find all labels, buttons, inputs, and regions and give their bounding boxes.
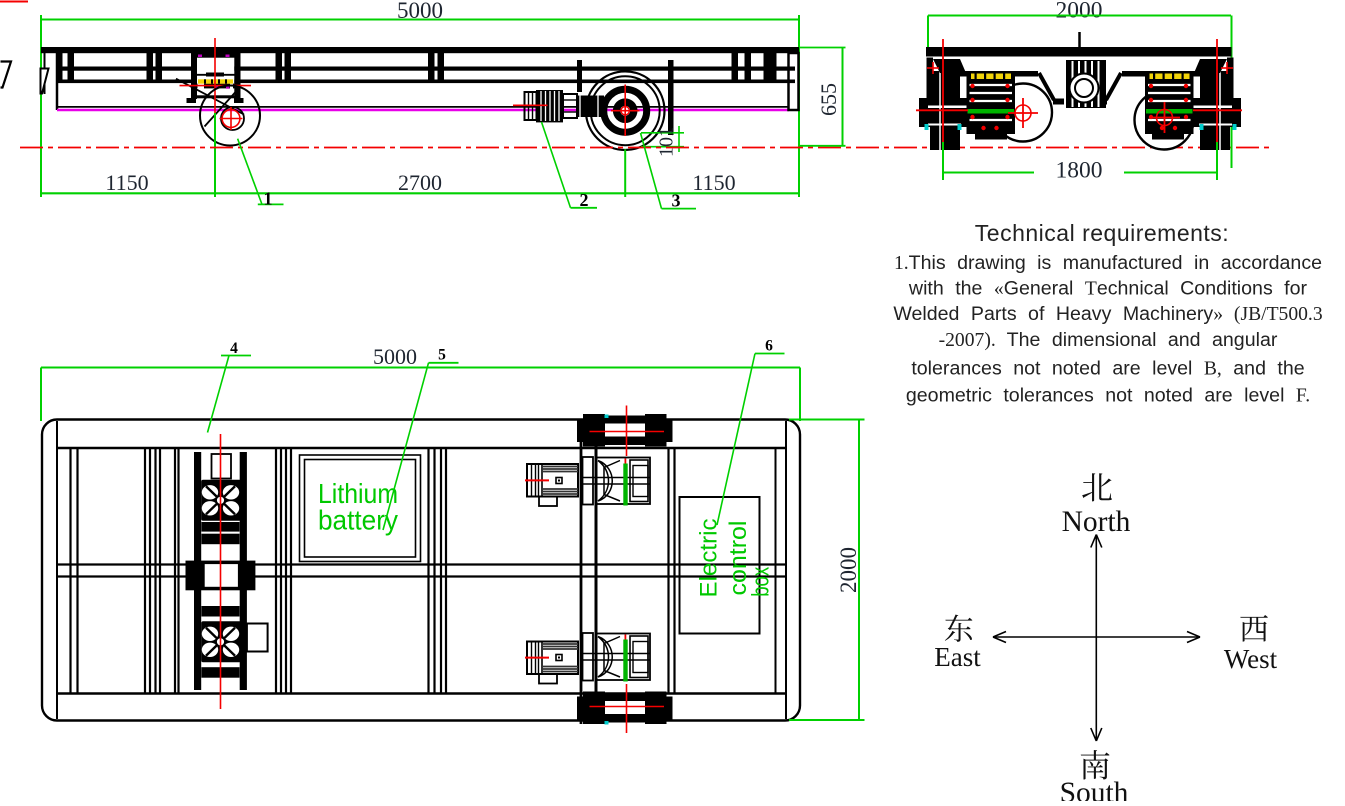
svg-text:5000: 5000	[373, 344, 417, 369]
svg-text:North: North	[1062, 506, 1131, 538]
svg-text:geometric tolerances not noted: geometric tolerances not noted are level…	[906, 385, 1310, 407]
svg-text:2700: 2700	[398, 170, 442, 195]
svg-text:Technical requirements:: Technical requirements:	[975, 220, 1229, 246]
svg-text:1150: 1150	[692, 170, 735, 195]
svg-text:box: box	[748, 567, 775, 597]
svg-text:Electric: Electric	[696, 519, 723, 598]
svg-text:1.This drawing is manufactured: 1.This drawing is manufactured in accord…	[894, 252, 1322, 274]
svg-text:3: 3	[672, 191, 681, 211]
svg-text:Welded Parts of Heavy Machiner: Welded Parts of Heavy Machinery» (JB/T50…	[893, 303, 1322, 325]
svg-text:2000: 2000	[1056, 0, 1103, 24]
svg-text:1800: 1800	[1056, 158, 1103, 184]
svg-text:4: 4	[230, 340, 238, 357]
svg-text:tolerances not noted are level: tolerances not noted are level B, and th…	[911, 358, 1304, 380]
svg-text:655: 655	[816, 83, 841, 116]
svg-text:101: 101	[656, 127, 678, 157]
svg-text:1: 1	[264, 189, 273, 209]
svg-text:with the «General Technical Co: with the «General Technical Conditions f…	[908, 278, 1308, 300]
svg-text:5: 5	[438, 347, 446, 364]
svg-text:2: 2	[580, 190, 589, 210]
svg-text:South: South	[1060, 777, 1129, 801]
svg-text:West: West	[1224, 644, 1278, 674]
svg-text:East: East	[934, 642, 981, 672]
svg-text:-2007). The dimensional and an: -2007). The dimensional and angular	[939, 329, 1278, 351]
svg-text:2000: 2000	[836, 547, 861, 593]
svg-text:1150: 1150	[105, 170, 148, 195]
svg-text:6: 6	[765, 338, 773, 355]
